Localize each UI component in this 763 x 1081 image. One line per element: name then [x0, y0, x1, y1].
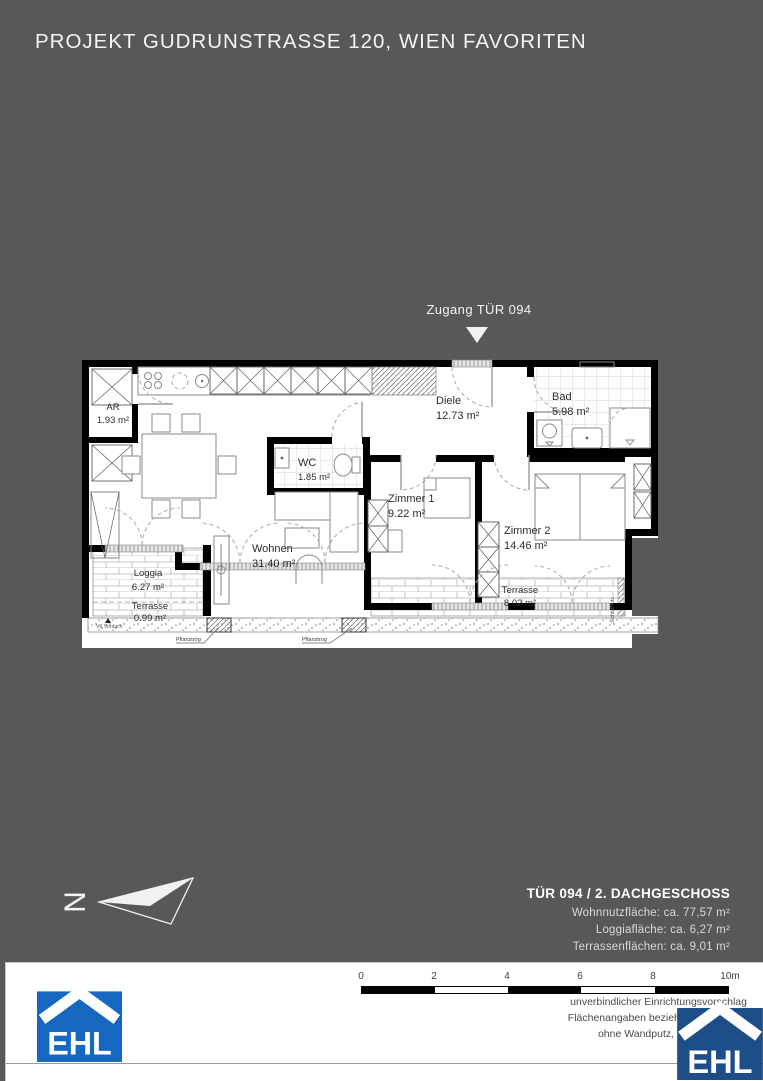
- scale-tick: 2: [431, 971, 437, 982]
- planter-strip: [88, 618, 658, 632]
- north-arrow-icon: N: [55, 870, 200, 930]
- svg-text:Diele: Diele: [436, 395, 461, 407]
- svg-text:0.99 m²: 0.99 m²: [134, 613, 166, 624]
- svg-text:1.93 m²: 1.93 m²: [97, 415, 129, 426]
- svg-text:Bad: Bad: [552, 391, 572, 403]
- ehl-logo: EHL: [677, 996, 763, 1080]
- unit-title: TÜR 094 / 2. DACHGESCHOSS: [527, 886, 730, 901]
- unit-info: TÜR 094 / 2. DACHGESCHOSS Wohnnutzfläche…: [527, 886, 730, 956]
- scale-tick: 4: [504, 971, 510, 982]
- svg-text:12.73 m²: 12.73 m²: [436, 410, 480, 422]
- svg-text:Zimmer 2: Zimmer 2: [504, 525, 550, 537]
- scale-tick: 6: [577, 971, 583, 982]
- wardrobe-hatch: [372, 367, 436, 395]
- svg-text:1.85 m²: 1.85 m²: [298, 472, 330, 483]
- footer-divider: [6, 1063, 763, 1064]
- scale-tick: 10m: [720, 971, 739, 982]
- room-label-terrasse-small: Terrasse 0.99 m²: [132, 601, 168, 624]
- svg-text:5.98 m²: 5.98 m²: [552, 406, 590, 418]
- svg-text:8.02 m²: 8.02 m²: [504, 598, 536, 609]
- svg-text:VK Vordach: VK Vordach: [96, 624, 123, 630]
- scale-bar: [361, 986, 729, 994]
- info-line-terrassenflaechen: Terrassenflächen: ca. 9,01 m²: [527, 939, 730, 956]
- svg-text:Terrasse: Terrasse: [132, 601, 168, 612]
- svg-text:31.40 m²: 31.40 m²: [252, 558, 296, 570]
- info-line-loggiaflaeche: Loggiafläche: ca. 6,27 m²: [527, 922, 730, 939]
- svg-text:Terrasse: Terrasse: [502, 585, 538, 596]
- entry-arrow-down-icon: [466, 327, 488, 343]
- sichtschutz-label: Sichtschutz: [610, 597, 616, 623]
- scale-tick: 0: [358, 971, 364, 982]
- svg-text:Loggia: Loggia: [134, 568, 163, 579]
- entry-label: Zugang TÜR 094: [404, 302, 554, 317]
- ehl-logo-text: EHL: [687, 1044, 752, 1080]
- page-background: { "page": { "title": "PROJEKT GUDRUNSTRA…: [0, 0, 763, 1080]
- svg-text:Zimmer 1: Zimmer 1: [388, 493, 434, 505]
- svg-text:14.46 m²: 14.46 m²: [504, 540, 548, 552]
- ehl-logo-text: EHL: [47, 1025, 112, 1061]
- north-letter: N: [59, 891, 92, 913]
- page-title: PROJEKT GUDRUNSTRASSE 120, WIEN FAVORITE…: [35, 30, 587, 54]
- svg-text:Wohnen: Wohnen: [252, 543, 293, 555]
- scale-tick: 8: [650, 971, 656, 982]
- ehl-logo: EHL: [37, 982, 122, 1062]
- svg-text:Pflanztrog: Pflanztrog: [302, 637, 327, 643]
- info-line-wohnnutzflaeche: Wohnnutzfläche: ca. 77,57 m²: [527, 905, 730, 922]
- svg-text:Pflanztrog: Pflanztrog: [176, 637, 201, 643]
- svg-text:9.22 m²: 9.22 m²: [388, 508, 426, 520]
- svg-text:6.27 m²: 6.27 m²: [132, 582, 164, 593]
- svg-text:AR: AR: [106, 402, 119, 413]
- floor-plan: AR 1.93 m² WC 1.85 m² Diele 12.73 m² Bad…: [80, 352, 662, 652]
- svg-text:WC: WC: [298, 457, 316, 469]
